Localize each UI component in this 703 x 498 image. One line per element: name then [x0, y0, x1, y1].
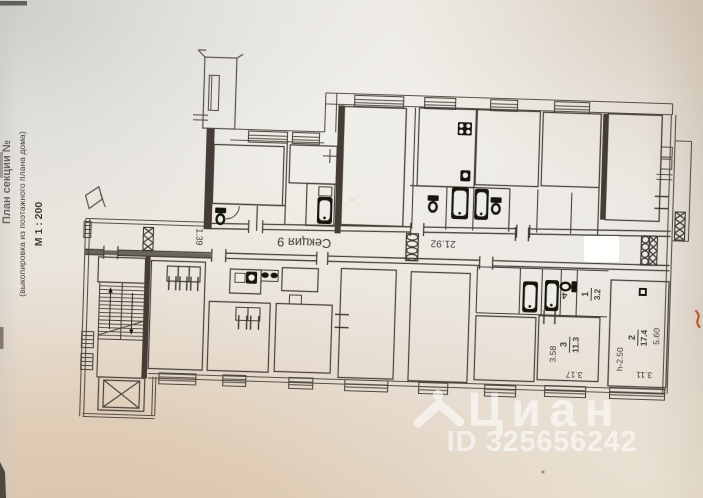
- svg-text:3.58: 3.58: [548, 345, 559, 362]
- svg-text:21.92: 21.92: [430, 237, 456, 249]
- svg-text:17.4: 17.4: [639, 329, 650, 346]
- svg-text:1.39: 1.39: [194, 228, 205, 246]
- svg-text:3.17: 3.17: [565, 370, 582, 381]
- svg-text:5.60: 5.60: [651, 328, 662, 345]
- svg-text:3.2: 3.2: [593, 288, 602, 300]
- svg-text:М 1 : 200: М 1 : 200: [33, 202, 45, 247]
- svg-text:2: 2: [627, 335, 637, 340]
- svg-text:3: 3: [559, 342, 569, 347]
- svg-text:(выкопировка из поэтажного пла: (выкопировка из поэтажного плана дома): [17, 131, 27, 297]
- svg-text:h-2.50: h-2.50: [614, 347, 625, 371]
- svg-text:1: 1: [580, 291, 590, 296]
- svg-text:Секция 9: Секция 9: [277, 234, 331, 251]
- svg-text:11.3: 11.3: [570, 336, 581, 353]
- svg-text:План секции №: План секции №: [1, 140, 13, 224]
- svg-text:3.11: 3.11: [636, 370, 653, 381]
- svg-text:ID 325656242: ID 325656242: [447, 426, 638, 458]
